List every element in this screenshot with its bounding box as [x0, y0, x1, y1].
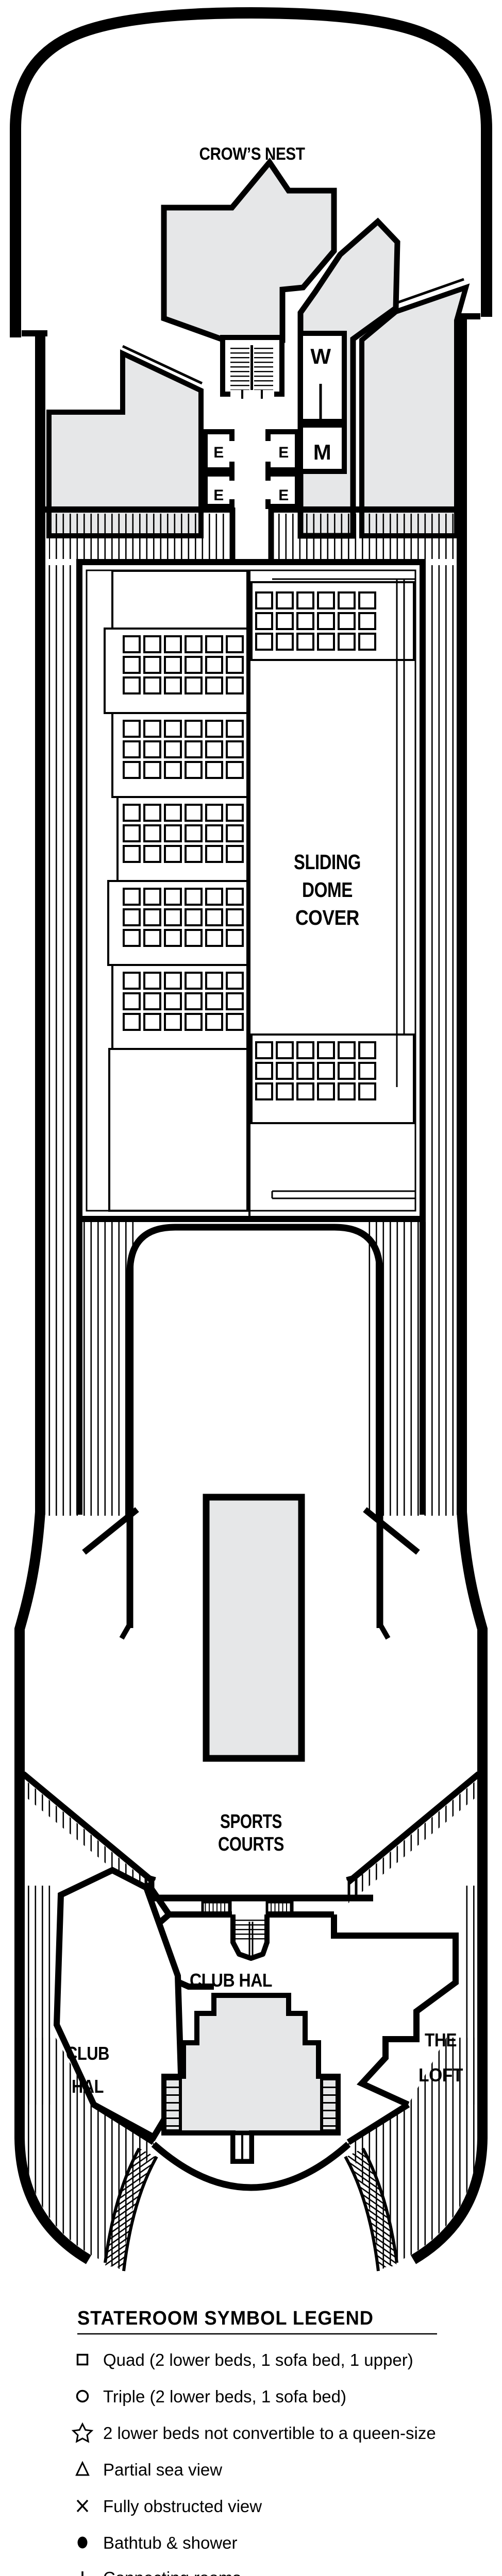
lounger — [206, 889, 222, 905]
forward-structures: W M E E E E — [49, 162, 466, 536]
lounger — [165, 805, 181, 821]
lounger — [227, 762, 243, 778]
lounger — [144, 973, 160, 989]
lounger — [227, 1014, 243, 1030]
side-lane-starboard — [431, 565, 456, 1222]
lounger — [227, 909, 243, 925]
promenade-band — [45, 507, 457, 562]
club-hal-center-label: CLUB HAL — [190, 1970, 272, 1991]
lounger — [165, 846, 181, 862]
lounger — [339, 634, 355, 650]
sliding-dome-label: COVER — [295, 906, 359, 929]
sports-courts-label: COURTS — [218, 1834, 284, 1855]
legend-item-text: 2 lower beds not convertible to a queen-… — [103, 2424, 436, 2443]
lounger — [124, 1014, 140, 1030]
lounger — [297, 592, 313, 608]
lounger — [339, 613, 355, 629]
crows-nest-label: CROW’S NEST — [199, 144, 306, 164]
lounger — [144, 721, 160, 737]
lounger — [186, 889, 202, 905]
lounger — [165, 657, 181, 673]
lounger — [186, 677, 202, 693]
lounger — [277, 1042, 293, 1058]
restroom-men-label: M — [313, 440, 331, 464]
legend-item: Fully obstructed view — [77, 2497, 262, 2516]
ramp-edge-port — [23, 1774, 154, 1882]
lounger — [165, 1014, 181, 1030]
legend-item-text: Connecting rooms — [103, 2568, 241, 2576]
lounger — [124, 762, 140, 778]
plus-icon — [76, 2571, 89, 2576]
lounger — [144, 636, 160, 652]
elevator-door-gap — [264, 441, 272, 462]
lounger — [297, 1083, 313, 1099]
stair-open-bottom — [230, 390, 274, 397]
lido-dome-enclosure: SLIDING DOME COVER — [47, 562, 456, 1222]
lounger — [186, 993, 202, 1009]
lounger — [144, 930, 160, 946]
elevator-label: E — [278, 487, 289, 504]
legend-item-text: Bathtub & shower — [103, 2533, 238, 2552]
lounger — [227, 677, 243, 693]
promenade-hatch — [275, 514, 454, 559]
ramp-hatch-starboard — [348, 1778, 479, 1903]
lounger — [165, 762, 181, 778]
lounger — [206, 762, 222, 778]
lounger — [318, 1083, 334, 1099]
lounger — [124, 741, 140, 757]
lounger — [297, 634, 313, 650]
lounger — [359, 613, 375, 629]
lounger — [339, 592, 355, 608]
lounger — [124, 846, 140, 862]
lounger — [165, 825, 181, 841]
restroom-women-label: W — [310, 344, 331, 368]
side-lane-port — [47, 565, 75, 1222]
lounger — [165, 973, 181, 989]
lounger — [318, 592, 334, 608]
lounger — [359, 1083, 375, 1099]
lounger — [256, 1063, 272, 1079]
elevator-label: E — [213, 444, 224, 461]
ladder-port — [165, 2078, 180, 2131]
legend-item: Triple (2 lower beds, 1 sofa bed) — [77, 2387, 347, 2406]
quad-square-icon — [78, 2355, 88, 2365]
lounger — [186, 973, 202, 989]
lounger — [359, 1042, 375, 1058]
elevator-door-gap — [264, 481, 272, 499]
aft-lane-wall-starboard — [420, 1222, 426, 1515]
lounger — [186, 846, 202, 862]
lounger — [124, 657, 140, 673]
legend-item: Quad (2 lower beds, 1 sofa bed, 1 upper) — [78, 2350, 413, 2369]
lounger — [186, 825, 202, 841]
deck-plan: CROW’S NEST W M — [0, 0, 502, 2576]
funnel-housing — [206, 1497, 302, 1758]
lounger — [277, 634, 293, 650]
legend-item: Connecting rooms — [76, 2568, 241, 2576]
triangle-icon — [77, 2463, 89, 2475]
lounger — [206, 930, 222, 946]
lounger — [277, 613, 293, 629]
lounger — [318, 634, 334, 650]
lounger — [339, 1042, 355, 1058]
lounger — [206, 741, 222, 757]
lounger — [206, 846, 222, 862]
lounger — [227, 636, 243, 652]
hull-wall-port — [35, 332, 45, 1515]
lounger — [186, 930, 202, 946]
lounger — [144, 741, 160, 757]
lounger — [186, 1014, 202, 1030]
lounger — [227, 721, 243, 737]
lounger — [124, 889, 140, 905]
lounger — [186, 805, 202, 821]
stair-flight-right — [254, 347, 273, 390]
lounger — [339, 1083, 355, 1099]
legend-item: 2 lower beds not convertible to a queen-… — [73, 2424, 436, 2443]
legend-title: STATEROOM SYMBOL LEGEND — [77, 2308, 374, 2329]
lounger — [186, 657, 202, 673]
lounger — [359, 634, 375, 650]
lounger — [206, 1014, 222, 1030]
lounger — [144, 805, 160, 821]
lounger — [227, 657, 243, 673]
lounger — [256, 1042, 272, 1058]
lounger — [206, 993, 222, 1009]
aft-opening: SPORTS COURTS — [47, 1222, 455, 1855]
lounger — [124, 636, 140, 652]
lounger — [318, 613, 334, 629]
lounger — [277, 1083, 293, 1099]
lounger — [318, 1063, 334, 1079]
lounger — [297, 1042, 313, 1058]
lounger — [165, 909, 181, 925]
lounger — [165, 677, 181, 693]
lounger — [144, 909, 160, 925]
lounger — [124, 721, 140, 737]
lounger — [165, 889, 181, 905]
lounger — [186, 762, 202, 778]
aft-lane-port — [47, 1222, 137, 1516]
lounger — [144, 1014, 160, 1030]
legend-item-text: Fully obstructed view — [103, 2497, 262, 2516]
lounger — [227, 889, 243, 905]
lounger — [144, 825, 160, 841]
lounger — [227, 805, 243, 821]
lounger — [297, 613, 313, 629]
promenade-hatch — [49, 514, 229, 559]
lounger — [339, 1063, 355, 1079]
lounger — [256, 613, 272, 629]
lounger — [206, 973, 222, 989]
lounger — [227, 973, 243, 989]
lounger — [186, 909, 202, 925]
aft-lane-wall-port — [76, 1222, 82, 1515]
lounger — [206, 825, 222, 841]
elevator-door-gap — [228, 441, 236, 462]
lounger — [227, 846, 243, 862]
lounger — [297, 1063, 313, 1079]
lounger — [227, 993, 243, 1009]
bathtub-dot-icon — [78, 2537, 88, 2549]
ramp-edge-starboard — [348, 1774, 479, 1882]
sports-courts-label: SPORTS — [220, 1811, 282, 1833]
lounger — [206, 677, 222, 693]
lounger — [256, 634, 272, 650]
lounger — [186, 741, 202, 757]
lounger — [124, 909, 140, 925]
lounger — [256, 1083, 272, 1099]
lounger — [227, 930, 243, 946]
lounger — [165, 930, 181, 946]
lounger — [359, 592, 375, 608]
sliding-dome-label: DOME — [302, 878, 353, 902]
club-hal-port-label: CLUB — [66, 2043, 109, 2064]
legend-item-text: Triple (2 lower beds, 1 sofa bed) — [103, 2387, 346, 2406]
lounger — [186, 636, 202, 652]
lounger — [124, 993, 140, 1009]
lounger — [165, 741, 181, 757]
star-icon — [73, 2424, 92, 2442]
triple-circle-icon — [77, 2391, 88, 2402]
stateroom-symbol-legend: STATEROOM SYMBOL LEGEND Quad (2 lower be… — [73, 2308, 437, 2576]
stern-notch — [121, 2144, 381, 2308]
elevator-label: E — [278, 444, 289, 461]
lounger — [318, 1042, 334, 1058]
ladder-starboard — [322, 2078, 337, 2131]
lounger — [124, 805, 140, 821]
lounger — [124, 930, 140, 946]
elevator-label: E — [213, 487, 224, 504]
lounger — [144, 889, 160, 905]
lounger — [206, 805, 222, 821]
lounger — [144, 846, 160, 862]
sliding-dome-label: SLIDING — [294, 850, 361, 874]
lounger — [165, 721, 181, 737]
lounger — [206, 909, 222, 925]
lounger — [359, 1063, 375, 1079]
lounger — [227, 825, 243, 841]
lounger — [144, 657, 160, 673]
lounger — [206, 721, 222, 737]
lounger — [165, 636, 181, 652]
lounger — [186, 721, 202, 737]
legend-item-text: Partial sea view — [103, 2460, 222, 2479]
x-icon — [77, 2500, 88, 2512]
lounger — [227, 741, 243, 757]
lounger — [256, 592, 272, 608]
lounger — [124, 677, 140, 693]
lounger — [144, 993, 160, 1009]
elevator-bank: E E E E — [205, 432, 297, 506]
lounger — [144, 762, 160, 778]
elevator-door-gap — [228, 481, 236, 499]
lounger — [277, 1063, 293, 1079]
legend-item-text: Quad (2 lower beds, 1 sofa bed, 1 upper) — [103, 2350, 413, 2369]
lounger — [144, 677, 160, 693]
lounger — [277, 592, 293, 608]
lounger — [165, 993, 181, 1009]
stair-flight-left — [230, 347, 249, 390]
lounger — [206, 636, 222, 652]
lounger — [206, 657, 222, 673]
lounger — [124, 825, 140, 841]
legend-item: Partial sea view — [77, 2460, 223, 2479]
legend-item: Bathtub & shower — [78, 2533, 238, 2552]
lounger — [124, 973, 140, 989]
